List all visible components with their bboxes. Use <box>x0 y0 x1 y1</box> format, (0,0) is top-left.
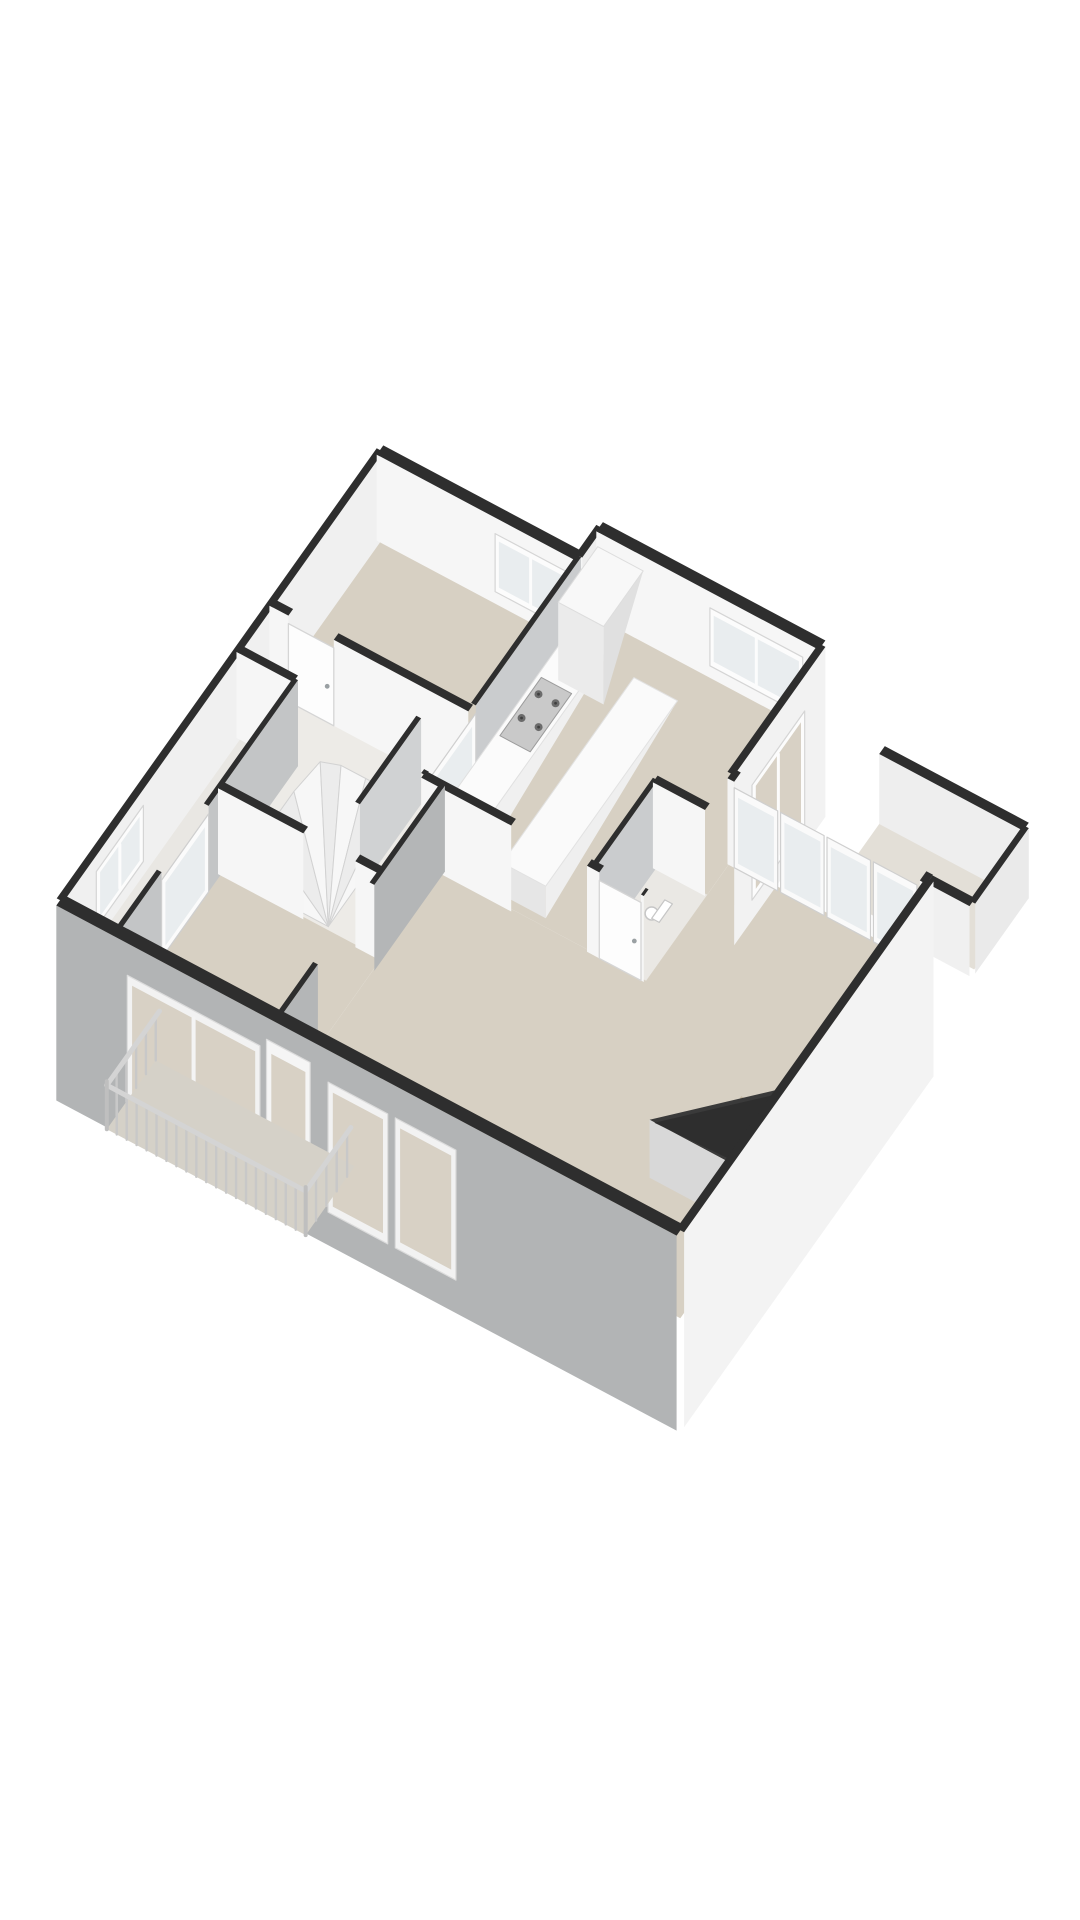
floorplan-page <box>0 0 1080 1920</box>
floor-plan-3d <box>0 0 1080 1920</box>
